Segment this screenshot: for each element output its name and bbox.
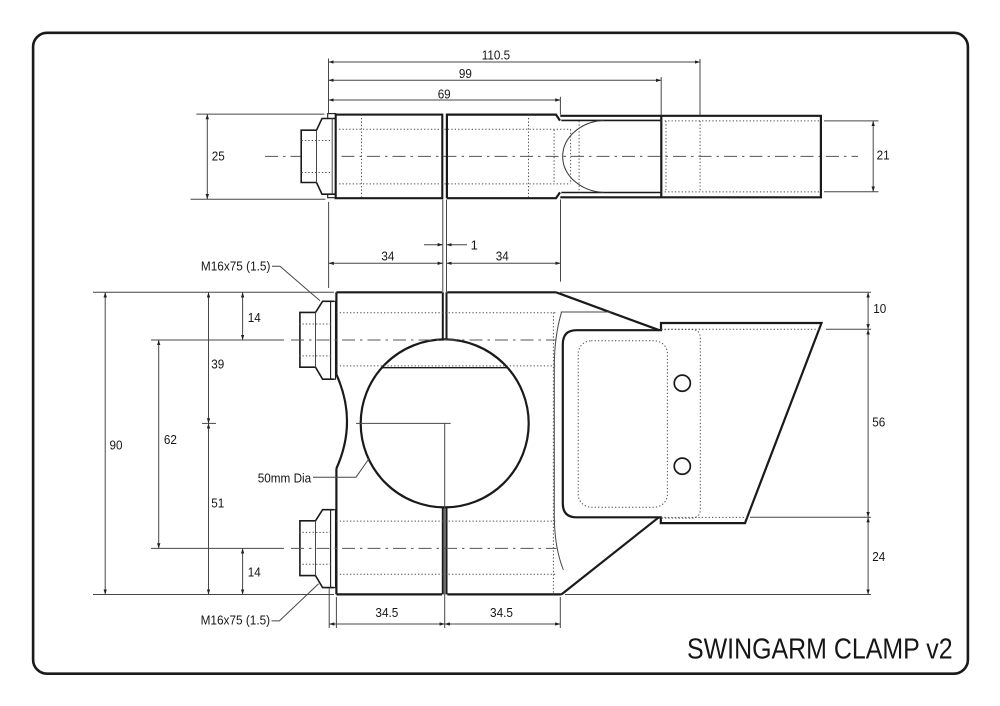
svg-text:34.5: 34.5 [375,605,398,620]
svg-text:14: 14 [248,310,261,325]
svg-text:14: 14 [248,564,261,579]
svg-text:10: 10 [873,301,886,316]
svg-text:21: 21 [877,147,890,162]
svg-text:24: 24 [872,549,885,564]
svg-text:51: 51 [211,496,224,511]
svg-text:34.5: 34.5 [490,605,513,620]
svg-text:62: 62 [164,432,177,447]
svg-text:34: 34 [381,248,394,263]
svg-text:56: 56 [872,414,885,429]
svg-text:M16x75 (1.5): M16x75 (1.5) [201,613,271,628]
svg-text:M16x75 (1.5): M16x75 (1.5) [201,258,271,273]
svg-text:110.5: 110.5 [482,48,510,63]
svg-text:34: 34 [496,248,509,263]
svg-text:50mm Dia: 50mm Dia [258,470,312,485]
svg-text:99: 99 [459,66,472,81]
svg-text:39: 39 [211,357,224,372]
svg-text:25: 25 [212,149,225,164]
svg-text:69: 69 [438,86,451,101]
svg-text:SWINGARM CLAMP v2: SWINGARM CLAMP v2 [687,634,953,666]
svg-text:1: 1 [471,238,478,253]
svg-text:90: 90 [110,437,123,452]
